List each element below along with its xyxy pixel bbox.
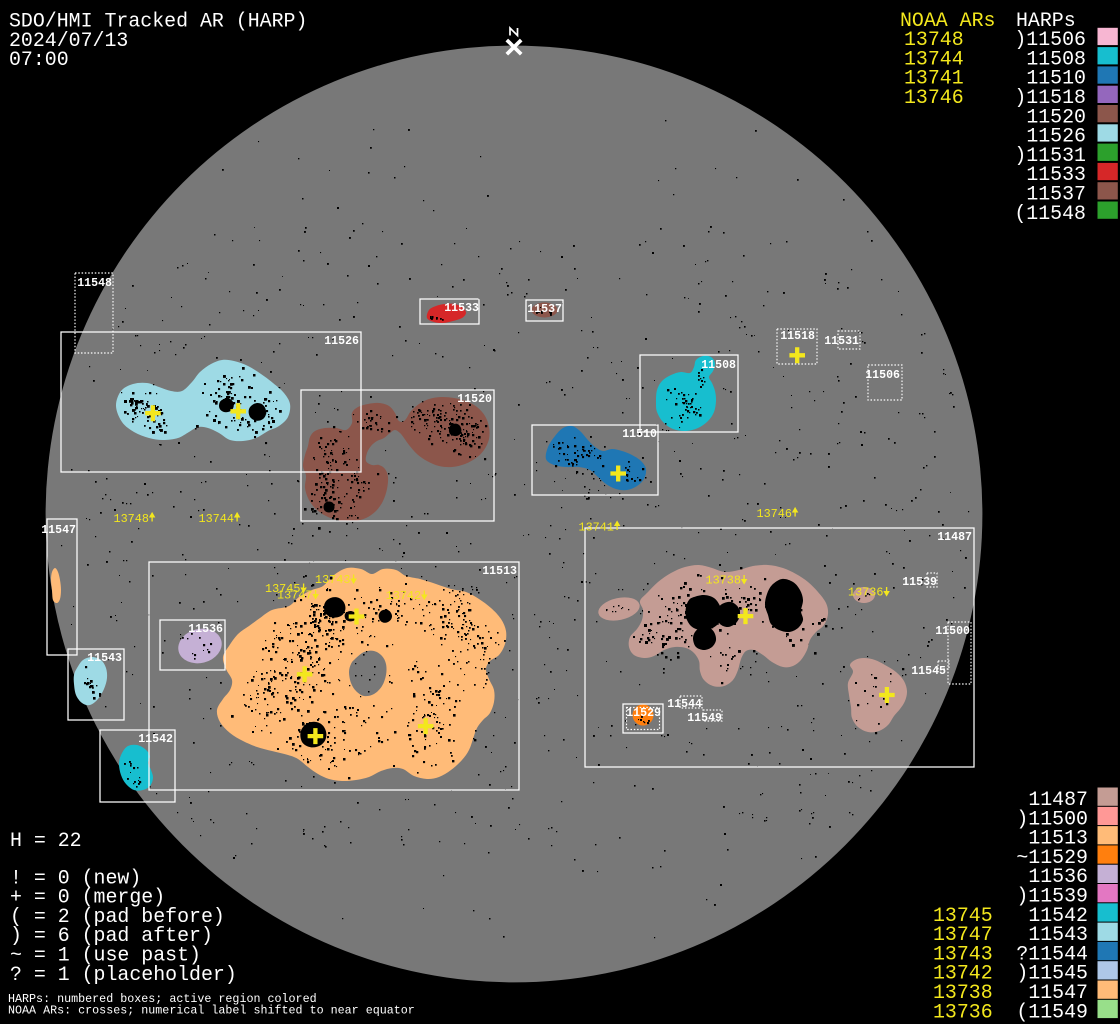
svg-text:11526: 11526 [324,335,359,348]
svg-text:13742: 13742 [386,589,421,603]
svg-text:11547: 11547 [41,524,76,537]
svg-text:13747: 13747 [277,589,312,603]
svg-text:13744: 13744 [199,512,234,526]
svg-text:13748: 13748 [114,512,149,526]
svg-text:11518: 11518 [780,330,815,343]
svg-text:11506: 11506 [865,369,900,382]
svg-text:11548: 11548 [77,277,112,290]
svg-text:13741: 13741 [579,521,614,535]
svg-text:(11548: (11548 [1014,202,1086,225]
svg-text:11500: 11500 [935,625,970,638]
svg-text:11542: 11542 [138,733,173,746]
svg-text:H = 22: H = 22 [10,829,82,852]
svg-text:11544: 11544 [667,698,702,711]
svg-text:11513: 11513 [482,565,517,578]
svg-text:07:00: 07:00 [9,48,69,71]
svg-text:11510: 11510 [622,428,657,441]
svg-text:11537: 11537 [527,303,562,316]
svg-text:13743: 13743 [315,573,350,587]
svg-text:11549: 11549 [687,712,722,725]
svg-text:13738: 13738 [706,574,741,588]
svg-text:11520: 11520 [457,393,492,406]
svg-text:? = 1 (placeholder): ? = 1 (placeholder) [10,963,237,986]
svg-text:11539: 11539 [902,576,937,589]
svg-text:11487: 11487 [937,531,972,544]
svg-text:11531: 11531 [824,335,859,348]
svg-text:13736: 13736 [933,1000,993,1023]
svg-text:(11549: (11549 [1016,1000,1088,1023]
svg-text:11533: 11533 [444,302,479,315]
svg-text:13736: 13736 [848,586,883,600]
svg-text:11543: 11543 [87,652,122,665]
svg-text:NOAA ARs: crosses; numerical l: NOAA ARs: crosses; numerical label shift… [8,1004,415,1018]
svg-text:11536: 11536 [188,623,223,636]
svg-text:13746: 13746 [757,507,792,521]
svg-text:11545: 11545 [911,665,946,678]
svg-text:13746: 13746 [904,86,964,109]
svg-text:11508: 11508 [701,359,736,372]
svg-text:11529: 11529 [626,707,661,720]
